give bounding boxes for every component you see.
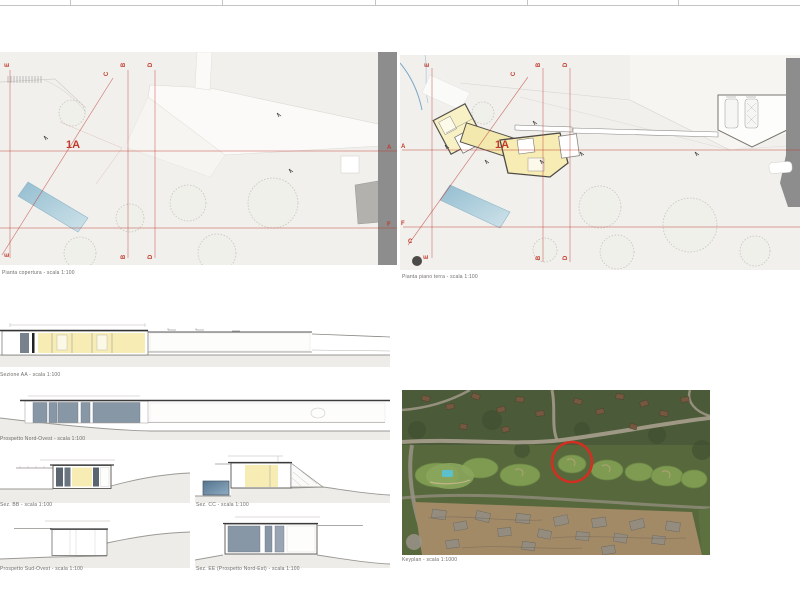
section-ee-caption: Sez. EE (Prospetto Nord-Est) - scala 1:1… [196, 566, 300, 572]
titleblock-divider [527, 0, 528, 5]
titleblock-divider [70, 0, 71, 5]
section-marker-E-bottom: E [5, 253, 11, 257]
unit-label-1A: 1A [66, 140, 80, 151]
section-marker-E-top: E [425, 63, 431, 67]
section-marker-E-bottom: E [424, 255, 430, 259]
ground-floor-plan: E C B D A F C E B D 1A [400, 55, 800, 270]
section-marker-F-right: F [387, 222, 391, 228]
elevation-sw-caption: Prospetto Sud-Ovest - scala 1:100 [0, 566, 83, 572]
pool-section [203, 481, 229, 495]
elevation-windows [33, 403, 140, 423]
section-marker-F-left: F [401, 221, 405, 227]
elevation-north-west [0, 394, 400, 442]
titleblock-divider [678, 0, 679, 5]
section-marker-C-top: C [511, 72, 517, 76]
long-section-caption: Sezione AA - scala 1:100 [0, 372, 60, 378]
section-marker-A-right: A [387, 145, 391, 151]
roof-plan: E C B D E B D A F 1A [0, 52, 397, 265]
north-symbol [412, 256, 422, 266]
elevation-nw-caption: Prospetto Nord-Ovest - scala 1:100 [0, 436, 85, 442]
section-marker-A-left: A [401, 144, 405, 150]
roof-plan-caption: Pianta copertura - scala 1:100 [2, 270, 75, 276]
car-outline [725, 99, 738, 128]
section-marker-E-top: E [5, 63, 11, 67]
pool [18, 182, 88, 232]
section-room-highlight [245, 465, 278, 487]
section-cc [195, 448, 390, 503]
section-marker-D-bottom: D [563, 256, 569, 260]
roundabout [406, 534, 422, 550]
section-marker-C-bottom: C [408, 239, 412, 245]
section-bb-caption: Sez. BB - scala 1:100 [0, 502, 52, 508]
section-marker-D-top: D [148, 63, 154, 67]
section-marker-C-top: C [104, 72, 110, 76]
ground-plan-caption: Pianta piano terra - scala 1:100 [402, 274, 478, 280]
section-marker-B-top: B [536, 63, 542, 67]
titleblock-divider [222, 0, 223, 5]
section-marker-B-bottom: B [536, 256, 542, 260]
section-marker-B-top: B [121, 63, 127, 67]
titleblock-edge [0, 0, 800, 6]
presentation-sheet: E C B D E B D A F 1A Pianta copertura - … [0, 0, 800, 600]
ground-plan-drawing [400, 55, 800, 270]
titleblock-divider [375, 0, 376, 5]
stairs-hatch [8, 76, 41, 83]
section-room-highlight [38, 333, 145, 353]
road-strip [378, 52, 397, 265]
section-marker-D-bottom: D [148, 255, 154, 259]
aerial-photo [402, 390, 710, 555]
section-ee [195, 513, 390, 568]
garden-terrace [426, 463, 474, 489]
unit-label-1A: 1A [495, 140, 509, 151]
car-outline [745, 99, 758, 128]
elevation-windows [228, 526, 284, 552]
keyplan-caption: Keyplan - scala 1:1000 [402, 557, 457, 563]
section-marker-B-bottom: B [121, 255, 127, 259]
elevation-south-west [0, 513, 190, 568]
small-pool [442, 470, 453, 477]
section-cc-caption: Sez. CC - scala 1:100 [196, 502, 249, 508]
pool [440, 185, 510, 228]
section-marker-D-top: D [563, 63, 569, 67]
roof-plan-drawing [0, 52, 397, 265]
section-bb [0, 448, 190, 503]
section-room-highlight [72, 468, 92, 487]
long-section [0, 322, 400, 372]
